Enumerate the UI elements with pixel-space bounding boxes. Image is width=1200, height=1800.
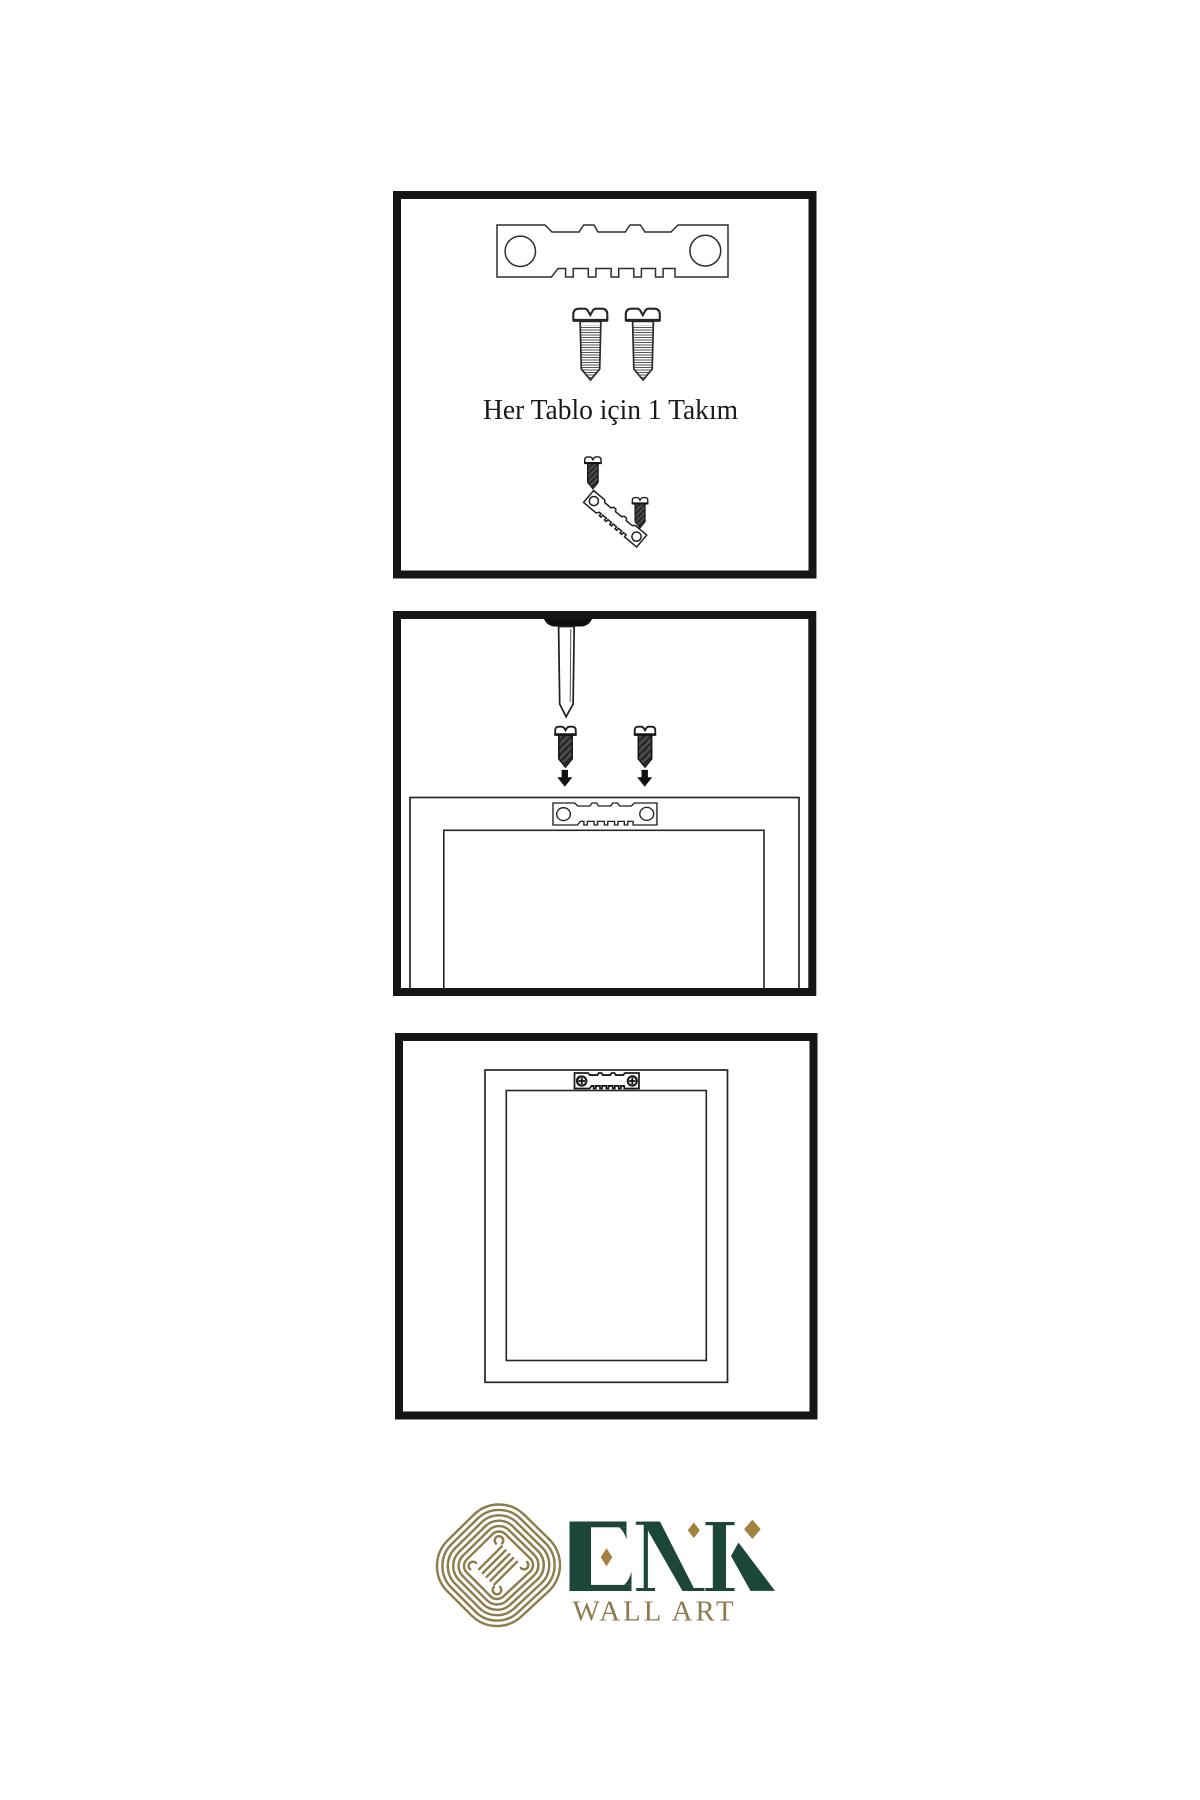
svg-text:WALL ART: WALL ART <box>573 1596 737 1628</box>
svg-text:Her Tablo için 1 Takım: Her Tablo için 1 Takım <box>483 395 738 426</box>
